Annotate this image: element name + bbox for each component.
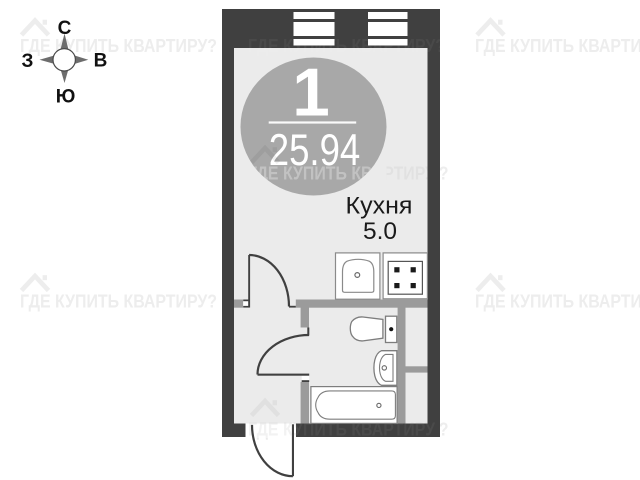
svg-text:В: В (94, 50, 108, 71)
svg-text:Кухня: Кухня (346, 193, 413, 220)
svg-text:ГДЕ КУПИТЬ КВАРТИРУ?: ГДЕ КУПИТЬ КВАРТИРУ? (20, 291, 217, 312)
svg-text:5.0: 5.0 (363, 218, 397, 245)
svg-text:ГДЕ КУПИТЬ КВАРТИРУ?: ГДЕ КУПИТЬ КВАРТИРУ? (475, 35, 640, 56)
svg-text:С: С (58, 18, 72, 39)
svg-text:ГДЕ КУПИТЬ КВАРТИРУ?: ГДЕ КУПИТЬ КВАРТИРУ? (20, 35, 217, 56)
svg-text:1: 1 (292, 56, 330, 131)
svg-text:ГДЕ КУПИТЬ КВАРТИРУ?: ГДЕ КУПИТЬ КВАРТИРУ? (248, 35, 445, 56)
svg-text:ГДЕ КУПИТЬ КВАРТИРУ: ГДЕ КУПИТЬ КВАРТИРУ (248, 419, 435, 440)
svg-text:З: З (22, 51, 34, 72)
svg-text:ГДЕ КУПИТЬ КВАРТИРУ?: ГДЕ КУПИТЬ КВАРТИРУ? (475, 291, 640, 312)
svg-text:Ю: Ю (56, 87, 76, 108)
